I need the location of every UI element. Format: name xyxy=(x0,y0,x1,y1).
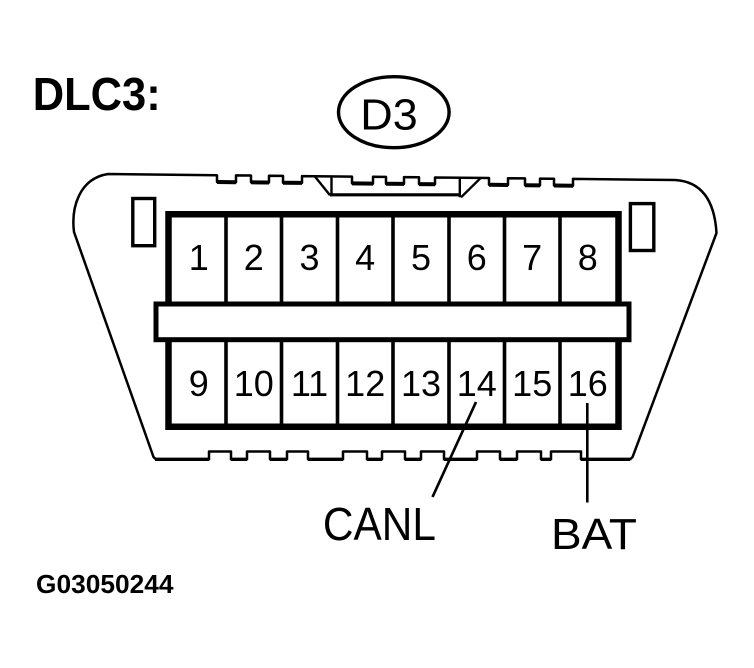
svg-text:5: 5 xyxy=(411,237,431,278)
svg-text:16: 16 xyxy=(568,363,608,404)
svg-text:15: 15 xyxy=(512,363,552,404)
svg-text:10: 10 xyxy=(234,363,274,404)
svg-text:BAT: BAT xyxy=(551,510,637,559)
svg-text:6: 6 xyxy=(467,237,487,278)
svg-text:CANL: CANL xyxy=(323,498,436,550)
svg-text:DLC3:: DLC3: xyxy=(33,68,161,120)
svg-text:G03050244: G03050244 xyxy=(36,569,174,599)
svg-text:9: 9 xyxy=(189,363,209,404)
svg-text:2: 2 xyxy=(244,237,264,278)
svg-text:12: 12 xyxy=(345,363,385,404)
svg-text:1: 1 xyxy=(189,237,209,278)
svg-text:4: 4 xyxy=(355,237,375,278)
svg-text:7: 7 xyxy=(522,237,542,278)
svg-text:D3: D3 xyxy=(360,92,417,140)
svg-text:11: 11 xyxy=(291,363,328,404)
svg-text:14: 14 xyxy=(457,363,497,404)
svg-text:3: 3 xyxy=(299,237,319,278)
svg-text:13: 13 xyxy=(401,363,441,404)
svg-text:8: 8 xyxy=(578,237,598,278)
